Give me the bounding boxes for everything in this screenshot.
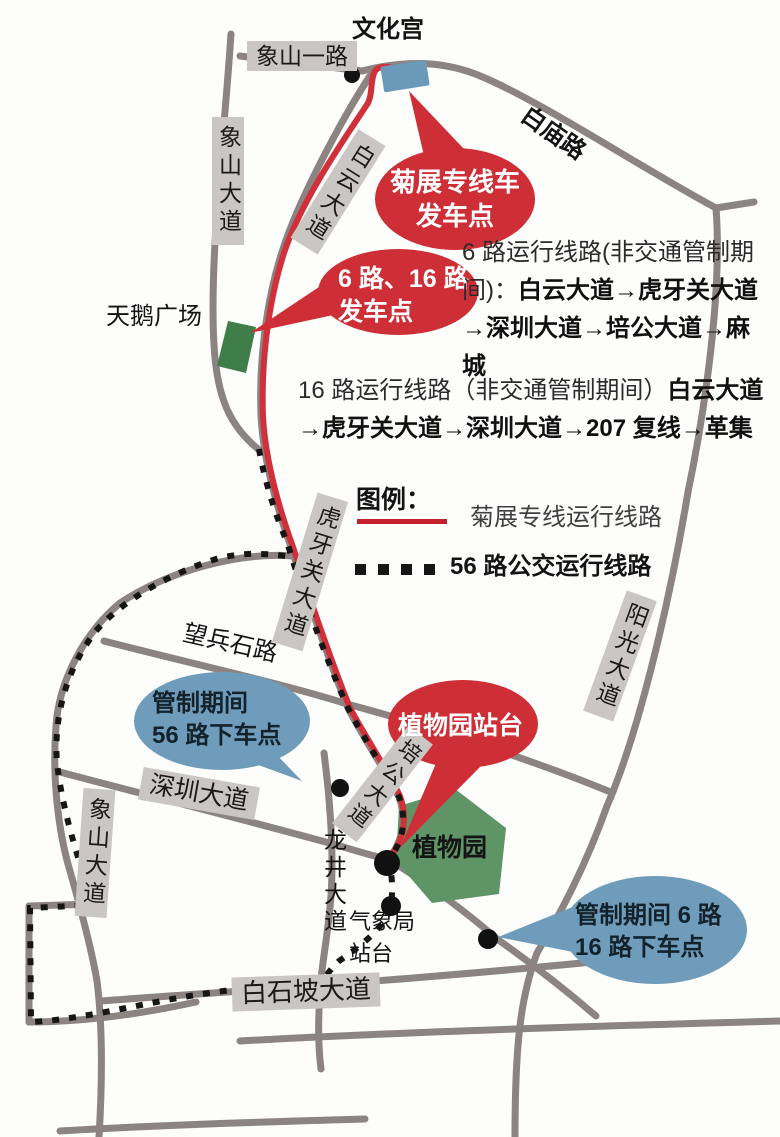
label-longjing-avenue: 龙井大道: [320, 828, 346, 936]
roadlabel-xiangshan-avenue-north: 象山大道: [212, 117, 244, 245]
balloon-dropoff-56-line1: 管制期间: [152, 688, 281, 720]
balloon-departure-special-text: 菊展专线车 发车点: [375, 166, 535, 234]
balloon-dropoff-6-16-line2: 16 路下车点: [575, 932, 722, 964]
road-baimiao-stub: [716, 202, 754, 208]
transit-map: 文化宫 白庙路 天鹅广场 望兵石路 龙井大道 气象局 站台 植物园 象山一路 象…: [0, 0, 780, 1137]
stop-dot-56-dropoff: [331, 779, 349, 797]
label-botanical-garden: 植物园: [412, 834, 487, 863]
stop-dot-botanical-platform: [374, 850, 400, 876]
stop-dot-6-16-dropoff: [478, 929, 498, 949]
balloon-departure-6-16-line1: 6 路、16 路: [338, 263, 469, 296]
balloon-dropoff-56-line2: 56 路下车点: [152, 720, 281, 752]
balloon-dropoff-6-16-line1: 管制期间 6 路: [575, 900, 722, 932]
label-swan-plaza: 天鹅广场: [106, 303, 202, 331]
legend-bus56-label: 56 路公交运行线路: [450, 553, 651, 581]
balloon-departure-6-16-line2: 发车点: [338, 296, 469, 329]
balloon-departure-special-line1: 菊展专线车: [375, 166, 535, 200]
road-bottom-left: [60, 1119, 365, 1131]
swan-plaza-area: [217, 321, 256, 373]
label-weather-bureau-line2: 站台: [349, 941, 393, 966]
label-weather-bureau-line1: 气象局: [349, 909, 415, 934]
note-route16-prefix: 16 路运行线路（非交通管制期间）: [298, 377, 667, 404]
balloon-dropoff-56-text: 管制期间 56 路下车点: [152, 688, 281, 753]
legend-special-line-swatch: [357, 519, 447, 524]
legend-bus56-swatch: [355, 564, 447, 575]
legend-special-line-label: 菊展专线运行线路: [470, 504, 662, 532]
roadlabel-xiangshan-first: 象山一路: [247, 41, 357, 71]
balloon-departure-special-line2: 发车点: [375, 200, 535, 234]
balloon-botanical-platform-text: 植物园站台: [398, 710, 523, 743]
balloon-dropoff-6-16-text: 管制期间 6 路 16 路下车点: [575, 900, 722, 965]
note-route16: 16 路运行线路（非交通管制期间）白云大道→虎牙关大道→深圳大道→207 复线→…: [298, 372, 773, 448]
roadlabel-baishipo-avenue: 白石坡大道: [231, 972, 380, 1011]
note-route6: 6 路运行线路(非交通管制期间)：白云大道→虎牙关大道→深圳大道→培公大道→麻城: [462, 234, 770, 386]
label-cultural-palace: 文化宫: [352, 16, 424, 44]
balloon-departure-6-16-text: 6 路、16 路 发车点: [338, 263, 469, 328]
legend-title: 图例：: [356, 486, 431, 515]
